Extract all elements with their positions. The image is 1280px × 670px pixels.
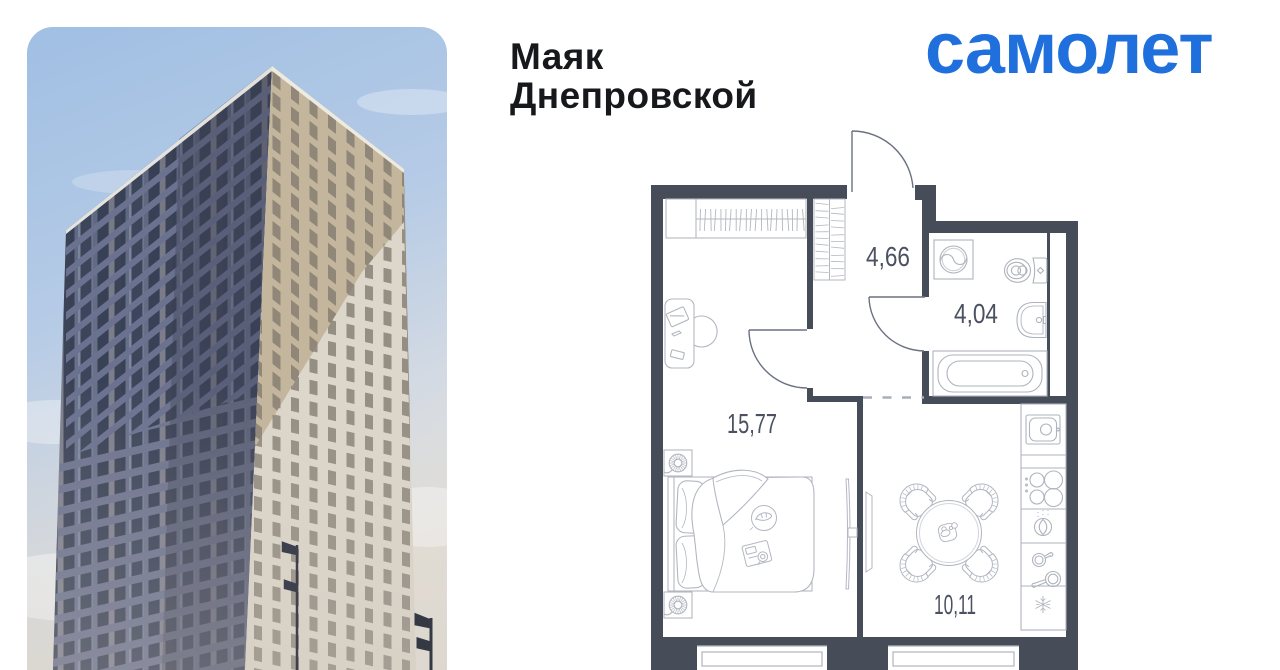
- svg-text:4,04: 4,04: [954, 298, 998, 329]
- svg-text:4,66: 4,66: [866, 241, 910, 272]
- svg-text:10,11: 10,11: [934, 589, 976, 620]
- svg-text:15,77: 15,77: [727, 408, 777, 439]
